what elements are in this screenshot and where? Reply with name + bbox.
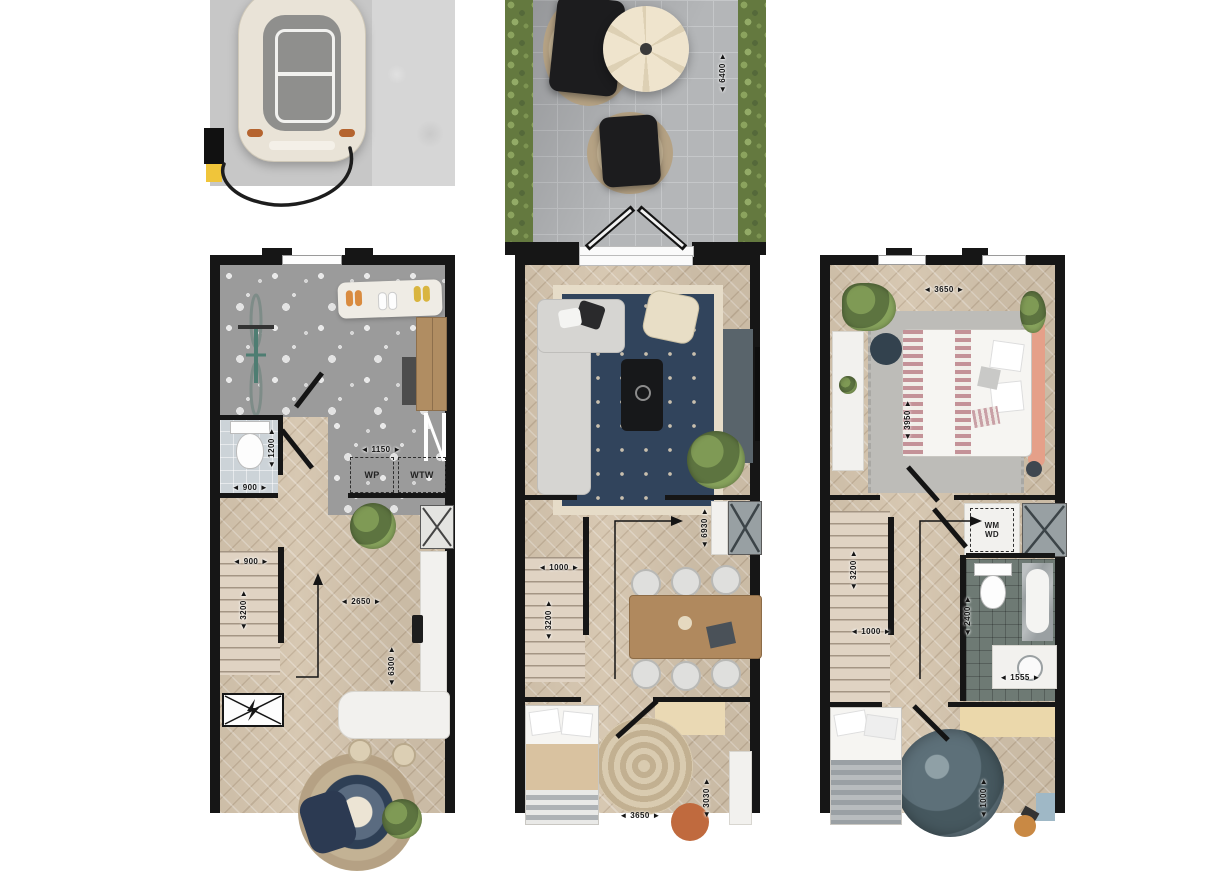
shaft-box [1022,503,1067,557]
mid-wall-left [525,495,577,500]
hall-wall [220,493,278,498]
meter-cupboard [222,693,284,727]
side-cabinet [402,357,416,405]
outdoor-chair [599,114,662,188]
kids-chair [1036,793,1055,821]
terrace-door-opening [579,255,693,266]
charging-cable-icon [200,0,455,240]
kidsroom-door-icon [900,702,960,748]
window [878,255,926,265]
stair-width-dim: ◄ 900 ► [226,557,276,567]
first-floor-plan: ◄ 6930 ► ◄ 1000 ► ◄ 3200 ► [515,255,760,813]
bathtub [1022,563,1053,641]
bath-width-dim: ◄ 1555 ► [990,673,1050,683]
bedroom-depth-dim: ◄ 3950 ► [903,394,913,446]
coffee-table [621,359,663,431]
bedroom-width-dim: ◄ 3650 ► [914,285,974,295]
window [982,255,1026,265]
terrace-depth-dim: ◄ 6400 ► [718,43,728,103]
pouf [870,333,902,365]
window [282,255,342,265]
second-floor-plan: ◄ 3650 ► ◄ 3950 ► WM WD [820,255,1065,813]
wall-stub [345,248,373,255]
dining-chair [711,659,741,689]
hall-wall-right [348,493,445,498]
stair-direction-arrow [288,565,388,685]
mid-wall-right [954,495,1055,500]
parasol-top-view [603,6,689,92]
closet [711,501,728,555]
ground-floor-plan: ◄ 1200 ► ◄ 900 ► ◄ 1150 ► WP WTW ◄ 900 ►… [210,255,455,813]
kidsroom-wall-right [948,702,1055,707]
stair-width-dim: ◄ 1000 ► [844,627,898,637]
tv-screen [755,347,760,441]
roof-terrace-plan: ◄ 6400 ► [505,0,766,255]
parking-photo [210,0,455,240]
single-bed [830,707,902,825]
plant [382,799,422,839]
kitchen-counter [420,551,447,711]
kitchen-island [338,691,450,739]
bedroom-wall-right [653,697,750,702]
stair-depth-dim: ◄ 3200 ► [849,546,859,594]
wall-stub [886,248,912,255]
staircase [830,511,890,703]
orange-pouf [1014,815,1036,837]
appliance-width-dim: ◄ 1150 ► [350,445,412,455]
bar-stool [392,743,416,767]
plant [350,503,396,549]
stair-depth-dim: ◄ 3200 ► [239,586,249,634]
first-floor-interior: ◄ 6930 ► ◄ 1000 ► ◄ 3200 ► [525,265,750,813]
wall-stub [962,248,988,255]
kids-desk [960,705,1055,737]
toilet-bowl [236,433,264,469]
wardrobe [416,317,447,411]
stair-wall [888,517,894,635]
bath-depth-dim: ◄ 2400 ► [963,592,973,640]
bottom-depth-dim: ◄ 1000 ► [979,774,989,822]
doormat-with-shoes [337,279,442,319]
desk [832,331,864,471]
radiator-icon [422,411,448,463]
hall-door-icon [280,365,340,425]
wc-width-dim: ◄ 900 ► [226,483,274,493]
cooktop [412,615,423,643]
mid-wall-right [665,495,750,500]
room-depth-dim: ◄ 6930 ► [700,504,710,552]
terrace-doors-icon [505,190,766,256]
mid-wall-left [830,495,880,500]
small-pouf [1026,461,1042,477]
ground-floor-interior: ◄ 1200 ► ◄ 900 ► ◄ 1150 ► WP WTW ◄ 900 ►… [220,265,445,813]
shaft-box [420,505,454,549]
staircase [525,557,585,682]
bedroom-door-icon [605,697,665,747]
plant [1020,291,1046,333]
kidsroom-wall-left [830,702,882,707]
wall-stub [262,248,292,255]
bar-stool [348,739,372,763]
heat-pump-box: WP [350,457,394,493]
bicycle-icon [232,289,280,421]
stair-wall [278,547,284,643]
stair-width-dim: ◄ 1000 ► [533,563,585,573]
kitchen-depth-dim: ◄ 6300 ► [387,642,397,690]
meter-x-icon [224,695,282,725]
heat-recovery-box: WTW [398,457,446,493]
stair-depth-dim: ◄ 3200 ► [544,596,554,644]
shaft-box [728,501,762,555]
double-bed [902,329,1032,457]
bedroom-wall-left [525,697,581,702]
heat-recovery-label: WTW [410,470,433,480]
plant-large [842,283,896,331]
desk [729,751,752,825]
second-floor-interior: ◄ 3650 ► ◄ 3950 ► WM WD [830,265,1055,813]
stair-wall [583,517,589,635]
throw-pillow-light [558,307,583,329]
heat-pump-label: WP [364,470,379,480]
plant-large [687,431,745,489]
wc-door-icon [270,420,330,480]
wc-depth-dim: ◄ 1200 ► [267,426,277,470]
stair-direction-arrow [593,511,703,687]
dining-chair [711,565,741,595]
bed [525,705,599,825]
bedroom-depth-dim: ◄ 3030 ► [702,774,712,822]
hall-width-dim: ◄ 2650 ► [328,597,394,607]
hall-door-icon [922,501,982,557]
lightning-bolt-icon [247,699,259,721]
staircase [220,551,280,675]
